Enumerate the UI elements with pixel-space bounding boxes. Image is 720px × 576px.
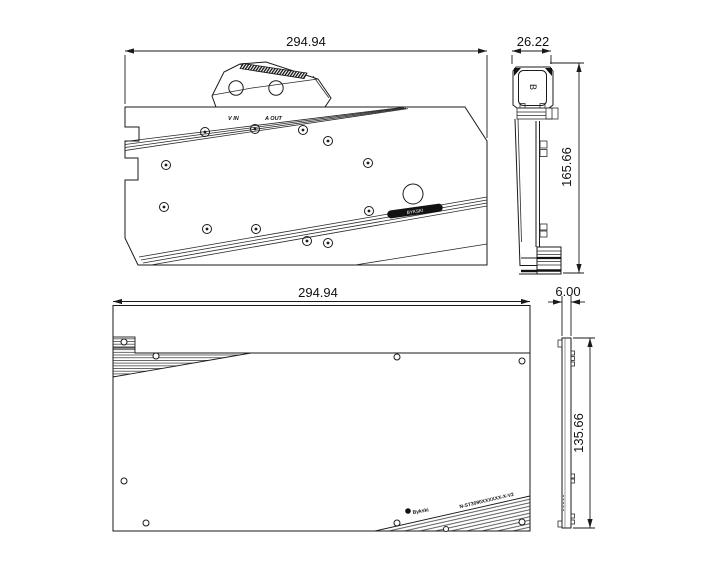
back-side-view: 6.00 135.66 bbox=[548, 284, 595, 528]
front-side-height-dimension: 165.66 bbox=[550, 63, 584, 273]
front-view: 294.94 V IN A OUT bbox=[125, 34, 487, 265]
back-view-outline bbox=[113, 306, 530, 532]
front-upper-stripe-band bbox=[125, 108, 408, 151]
technical-drawing-page: 294.94 V IN A OUT bbox=[0, 0, 720, 576]
back-side-width-dimension: 6.00 bbox=[548, 284, 585, 336]
front-side-height-label: 165.66 bbox=[559, 147, 574, 187]
side-terminal-profile: B bbox=[513, 67, 553, 108]
back-width-dimension: 294.94 bbox=[113, 285, 530, 302]
port-circle-inlet bbox=[229, 81, 243, 95]
side-body bbox=[515, 119, 547, 266]
inlet-label: V IN bbox=[228, 116, 240, 122]
port-circle-outlet bbox=[269, 81, 283, 95]
back-view: 294.94 Bykski N-ST3090XXXXXX-X-V2 bbox=[113, 285, 530, 532]
drawing-canvas: 294.94 V IN A OUT bbox=[0, 0, 720, 576]
front-side-width-label: 26.22 bbox=[517, 34, 550, 49]
back-width-label: 294.94 bbox=[298, 285, 338, 300]
back-side-height-label: 135.66 bbox=[571, 413, 586, 453]
terminal-block bbox=[212, 62, 331, 107]
back-topleft-hatch bbox=[113, 337, 251, 377]
plug-port-circle bbox=[403, 184, 423, 204]
front-side-view: 26.22 B bbox=[512, 34, 584, 274]
brand-text: Bykski bbox=[412, 507, 430, 516]
front-screw-holes bbox=[160, 125, 374, 248]
front-side-width-dimension: 26.22 bbox=[512, 34, 551, 64]
brand-logo-icon bbox=[405, 508, 411, 514]
back-side-width-label: 6.00 bbox=[555, 284, 580, 299]
terminal-hatch-band bbox=[240, 64, 307, 79]
outlet-label: A OUT bbox=[264, 116, 283, 122]
side-step bbox=[517, 108, 558, 119]
front-engraving-pill: BYKSKI bbox=[387, 203, 444, 219]
back-side-height-dimension: 135.66 bbox=[571, 338, 595, 528]
front-width-label: 294.94 bbox=[286, 34, 326, 49]
side-port-mark: B bbox=[528, 84, 538, 90]
side-bottom-stack bbox=[519, 247, 561, 274]
